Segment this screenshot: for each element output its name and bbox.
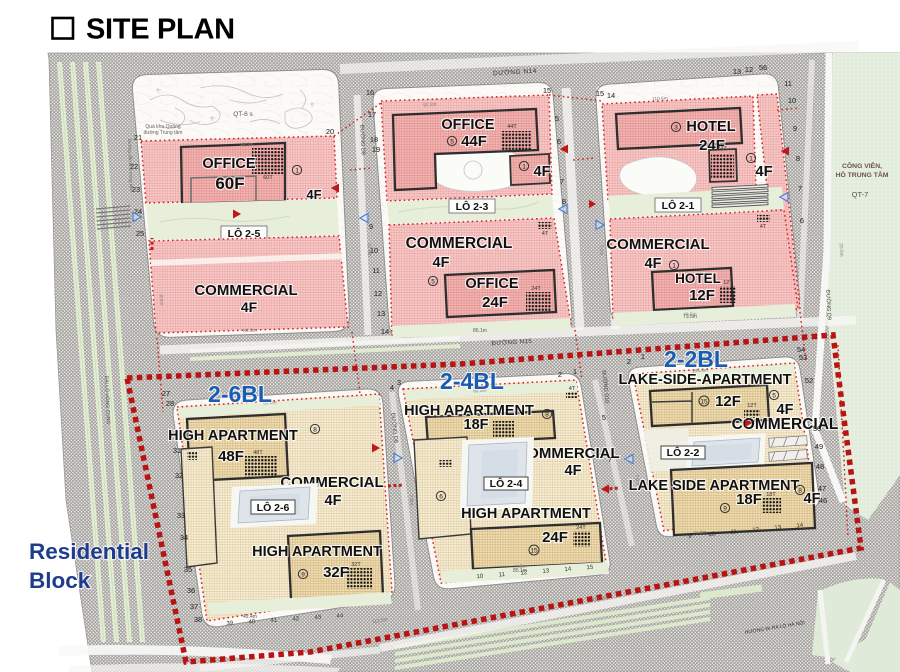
svg-text:21: 21 <box>134 133 142 142</box>
svg-text:32T: 32T <box>351 562 361 568</box>
svg-text:60T: 60T <box>263 175 273 181</box>
svg-text:7: 7 <box>798 184 802 193</box>
svg-text:16: 16 <box>366 88 374 97</box>
svg-text:86.5m: 86.5m <box>243 328 257 334</box>
svg-text:5: 5 <box>431 278 435 285</box>
svg-text:15: 15 <box>530 547 538 554</box>
svg-text:92.2m: 92.2m <box>423 102 437 109</box>
svg-text:18T: 18T <box>766 492 776 498</box>
svg-text:13: 13 <box>377 309 385 318</box>
svg-text:6: 6 <box>557 137 561 146</box>
svg-text:5: 5 <box>602 413 606 422</box>
svg-text:LÔ 2-3: LÔ 2-3 <box>456 200 489 213</box>
svg-text:44F: 44F <box>461 133 487 150</box>
svg-text:24T: 24T <box>717 146 727 152</box>
svg-text:46: 46 <box>819 496 827 505</box>
svg-text:48T: 48T <box>253 450 263 456</box>
svg-text:11: 11 <box>372 266 380 275</box>
svg-text:5: 5 <box>772 392 776 399</box>
svg-text:49: 49 <box>815 442 823 451</box>
svg-text:2: 2 <box>627 357 631 366</box>
svg-text:73.5m: 73.5m <box>683 312 697 318</box>
svg-text:12F: 12F <box>689 287 715 304</box>
svg-text:1: 1 <box>573 367 577 376</box>
svg-text:COMMERCIAL: COMMERCIAL <box>406 235 513 252</box>
svg-text:3: 3 <box>674 124 678 131</box>
svg-text:10: 10 <box>476 574 484 581</box>
svg-text:4T: 4T <box>760 224 767 230</box>
svg-text:12: 12 <box>374 289 382 298</box>
svg-text:13: 13 <box>542 568 550 575</box>
svg-text:15: 15 <box>586 565 594 572</box>
svg-text:39: 39 <box>226 621 234 628</box>
svg-text:48F: 48F <box>218 448 244 465</box>
svg-text:50: 50 <box>813 424 821 433</box>
svg-text:LAKE-SIDE-APARTMENT: LAKE-SIDE-APARTMENT <box>619 372 792 388</box>
svg-text:LÔ 2-4: LÔ 2-4 <box>490 477 523 490</box>
svg-text:Block: Block <box>29 568 91 593</box>
svg-text:44T: 44T <box>507 124 517 130</box>
svg-text:CÔNG VIÊN,: CÔNG VIÊN, <box>842 161 882 170</box>
svg-text:7.0m: 7.0m <box>633 474 640 485</box>
svg-text:15: 15 <box>543 86 551 95</box>
svg-text:24F: 24F <box>542 529 568 546</box>
svg-text:8: 8 <box>798 487 802 494</box>
svg-text:32: 32 <box>175 471 183 480</box>
svg-text:4T: 4T <box>542 231 549 237</box>
svg-text:12: 12 <box>745 65 753 74</box>
svg-text:9: 9 <box>301 571 305 578</box>
svg-text:41: 41 <box>270 618 278 625</box>
svg-text:12T: 12T <box>723 280 733 286</box>
svg-text:19: 19 <box>372 145 380 154</box>
svg-text:HIGH APARTMENT: HIGH APARTMENT <box>461 506 591 522</box>
svg-text:10: 10 <box>788 96 796 105</box>
svg-text:7.0m: 7.0m <box>407 494 414 505</box>
svg-text:18: 18 <box>370 135 378 144</box>
svg-text:20.0m: 20.0m <box>838 243 845 257</box>
svg-text:14: 14 <box>381 327 389 336</box>
svg-text:44: 44 <box>336 613 344 620</box>
svg-text:18F: 18F <box>736 491 762 508</box>
svg-text:8.0m: 8.0m <box>158 294 165 305</box>
svg-text:9: 9 <box>793 124 797 133</box>
svg-text:86.1m: 86.1m <box>473 328 487 334</box>
svg-text:7.0m: 7.0m <box>598 245 604 256</box>
svg-text:11: 11 <box>499 572 506 579</box>
svg-text:14: 14 <box>564 566 572 573</box>
svg-text:12T: 12T <box>747 403 757 409</box>
svg-text:đường Trung tâm: đường Trung tâm <box>144 130 183 136</box>
svg-text:4F: 4F <box>433 255 450 271</box>
svg-text:8: 8 <box>313 426 317 433</box>
svg-text:4F: 4F <box>241 299 258 315</box>
svg-text:4T: 4T <box>569 386 576 392</box>
svg-text:LÔ 2-1: LÔ 2-1 <box>662 199 695 212</box>
svg-text:2-4BL: 2-4BL <box>440 368 504 394</box>
svg-text:COMMERCIAL: COMMERCIAL <box>606 236 709 253</box>
svg-text:18F: 18F <box>464 417 489 433</box>
svg-text:2: 2 <box>558 370 562 379</box>
svg-text:12.8m: 12.8m <box>366 243 372 257</box>
svg-text:42: 42 <box>292 616 300 623</box>
svg-text:HIGH APARTMENT: HIGH APARTMENT <box>168 428 298 444</box>
svg-text:HOTEL: HOTEL <box>675 271 721 286</box>
svg-text:8: 8 <box>545 411 549 418</box>
svg-text:27: 27 <box>162 389 170 398</box>
svg-text:48: 48 <box>816 462 824 471</box>
svg-text:10: 10 <box>708 531 716 538</box>
svg-text:HOTEL: HOTEL <box>686 119 735 135</box>
svg-text:2-2BL: 2-2BL <box>664 346 728 372</box>
svg-text:37: 37 <box>190 602 198 611</box>
svg-text:14: 14 <box>796 523 804 530</box>
svg-text:35: 35 <box>184 565 192 574</box>
svg-text:4F: 4F <box>755 163 773 180</box>
svg-text:24T: 24T <box>576 525 586 531</box>
svg-text:15: 15 <box>596 89 604 98</box>
svg-text:32F: 32F <box>323 564 349 581</box>
svg-text:47: 47 <box>818 484 826 493</box>
svg-text:8: 8 <box>796 154 800 163</box>
svg-text:6: 6 <box>800 216 804 225</box>
svg-text:LÔ 2-2: LÔ 2-2 <box>667 446 700 459</box>
svg-text:5: 5 <box>450 138 454 145</box>
svg-text:60F: 60F <box>215 174 244 193</box>
svg-text:12: 12 <box>752 527 760 534</box>
svg-text:31: 31 <box>173 446 181 455</box>
svg-text:1: 1 <box>522 163 526 170</box>
svg-text:4F: 4F <box>565 463 582 479</box>
svg-text:7: 7 <box>560 177 564 186</box>
svg-text:Residential: Residential <box>29 539 149 564</box>
svg-text:QT-7: QT-7 <box>852 190 869 199</box>
svg-text:14: 14 <box>607 91 615 100</box>
svg-text:25: 25 <box>136 229 144 238</box>
svg-text:15: 15 <box>700 398 708 405</box>
svg-text:20: 20 <box>326 127 334 136</box>
svg-text:COMMERCIAL: COMMERCIAL <box>194 282 297 299</box>
svg-text:12: 12 <box>520 570 528 577</box>
svg-text:38: 38 <box>194 615 202 624</box>
svg-text:4F: 4F <box>325 493 342 509</box>
svg-text:1: 1 <box>672 262 676 269</box>
svg-text:52: 52 <box>805 376 813 385</box>
svg-text:LÔ 2-6: LÔ 2-6 <box>257 501 290 514</box>
svg-text:43: 43 <box>314 615 322 622</box>
svg-text:5: 5 <box>555 114 559 123</box>
svg-text:4F: 4F <box>645 256 662 272</box>
svg-text:2-6BL: 2-6BL <box>208 381 272 407</box>
svg-text:49.3m: 49.3m <box>240 142 254 148</box>
svg-text:3: 3 <box>397 378 401 387</box>
svg-text:28: 28 <box>166 399 174 408</box>
svg-text:HIGH APARTMENT: HIGH APARTMENT <box>252 544 382 560</box>
svg-text:13: 13 <box>774 525 782 532</box>
svg-text:56: 56 <box>759 63 767 72</box>
svg-text:110.6m: 110.6m <box>652 96 668 103</box>
svg-text:40: 40 <box>248 619 256 626</box>
svg-text:36: 36 <box>187 586 195 595</box>
svg-text:4: 4 <box>390 383 394 392</box>
svg-text:24T: 24T <box>531 286 541 292</box>
svg-text:7: 7 <box>608 455 612 464</box>
svg-text:9: 9 <box>369 222 373 231</box>
svg-text:34: 34 <box>180 533 188 542</box>
svg-text:11: 11 <box>784 79 792 88</box>
svg-text:4F: 4F <box>534 164 551 180</box>
svg-text:13: 13 <box>733 67 741 76</box>
svg-text:8: 8 <box>562 197 566 206</box>
svg-text:OFFICE: OFFICE <box>465 276 518 292</box>
svg-text:1: 1 <box>295 167 299 174</box>
svg-text:33: 33 <box>177 511 185 520</box>
svg-text:SITE PLAN: SITE PLAN <box>86 14 235 46</box>
svg-text:6: 6 <box>439 493 443 500</box>
svg-text:12F: 12F <box>715 393 741 410</box>
svg-text:24F: 24F <box>482 294 508 311</box>
svg-text:1: 1 <box>641 352 645 361</box>
svg-text:QT-6 s: QT-6 s <box>233 111 253 118</box>
svg-text:1: 1 <box>749 155 753 162</box>
svg-text:OFFICE: OFFICE <box>202 156 255 172</box>
svg-text:OFFICE: OFFICE <box>441 117 494 133</box>
svg-text:9: 9 <box>723 505 727 512</box>
